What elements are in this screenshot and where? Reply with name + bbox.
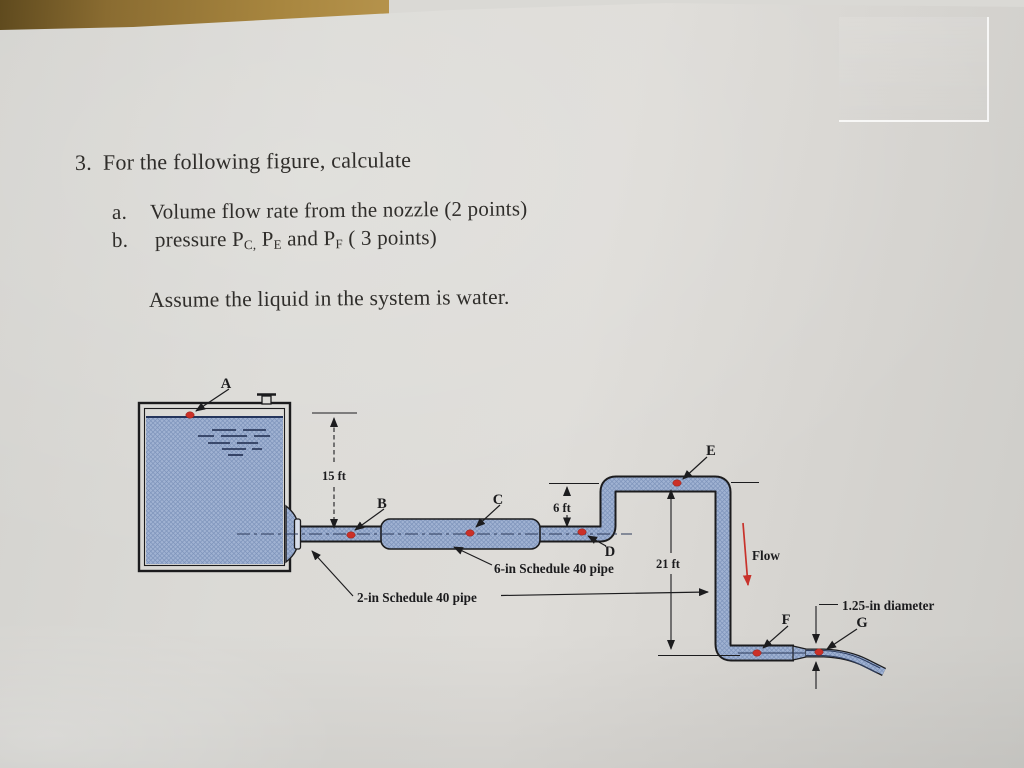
item-b-part2: P [256, 227, 274, 251]
pressure-subscript-f: F [335, 236, 343, 251]
point-f-dot [753, 650, 761, 656]
point-g-dot [815, 649, 823, 655]
dimension-6ft-label: 6 ft [553, 501, 572, 515]
point-b-dot [347, 532, 355, 538]
dimension-nozzle-diameter [816, 605, 838, 690]
pressure-subscript-c: C, [244, 237, 256, 252]
item-a: a.Volume flow rate from the nozzle (2 po… [112, 198, 528, 223]
item-b-part3: and P [282, 226, 336, 250]
item-a-text: Volume flow rate from the nozzle (2 poin… [150, 196, 528, 223]
pressure-subscript-e: E [274, 237, 282, 252]
point-e-label: E [706, 443, 716, 459]
problem-title: For the following figure, calculate [103, 147, 411, 175]
item-b-label: b. [112, 230, 155, 251]
item-b-text: pressure PC, PE and PF ( 3 points) [155, 225, 437, 251]
problem-heading: 3.For the following figure, calculate [75, 149, 411, 174]
paper-sheet: 3.For the following figure, calculate a.… [0, 0, 1024, 768]
point-a-dot [186, 412, 194, 418]
item-b: b.pressure PC, PE and PF ( 3 points) [112, 227, 437, 252]
item-a-label: a. [112, 202, 150, 223]
nozzle-diameter-label: 1.25-in diameter [842, 598, 934, 613]
point-d-dot [578, 529, 586, 535]
item-b-part4: ( 3 points) [343, 225, 437, 250]
photo-scene: 3.For the following figure, calculate a.… [0, 0, 1024, 768]
point-c-dot [466, 530, 474, 536]
point-c-label: C [493, 492, 503, 508]
item-b-part1: pressure P [155, 227, 244, 252]
discharge-nozzle [793, 646, 884, 673]
flow-arrow [743, 523, 748, 585]
dimension-15ft-label: 15 ft [322, 469, 347, 483]
pipe-2in-label: 2-in Schedule 40 pipe [357, 590, 477, 605]
flow-indicator [743, 523, 748, 585]
assumption-text: Assume the liquid in the system is water… [149, 287, 510, 312]
problem-number: 3. [75, 152, 103, 174]
piping-figure: 15 ft 6 ft 21 ft [0, 340, 1024, 768]
point-b-label: B [377, 496, 387, 512]
flow-label: Flow [752, 548, 780, 563]
point-a-label: A [221, 376, 232, 392]
point-f-label: F [782, 612, 791, 628]
whiteout-rectangle [839, 17, 989, 122]
supply-tank [139, 395, 301, 572]
point-e-dot [673, 480, 681, 486]
pipe-6in-label: 6-in Schedule 40 pipe [494, 561, 614, 576]
tank-water [146, 417, 283, 564]
point-d-label: D [605, 544, 615, 560]
dimension-21ft-label: 21 ft [656, 557, 681, 571]
point-g-label: G [856, 615, 867, 631]
